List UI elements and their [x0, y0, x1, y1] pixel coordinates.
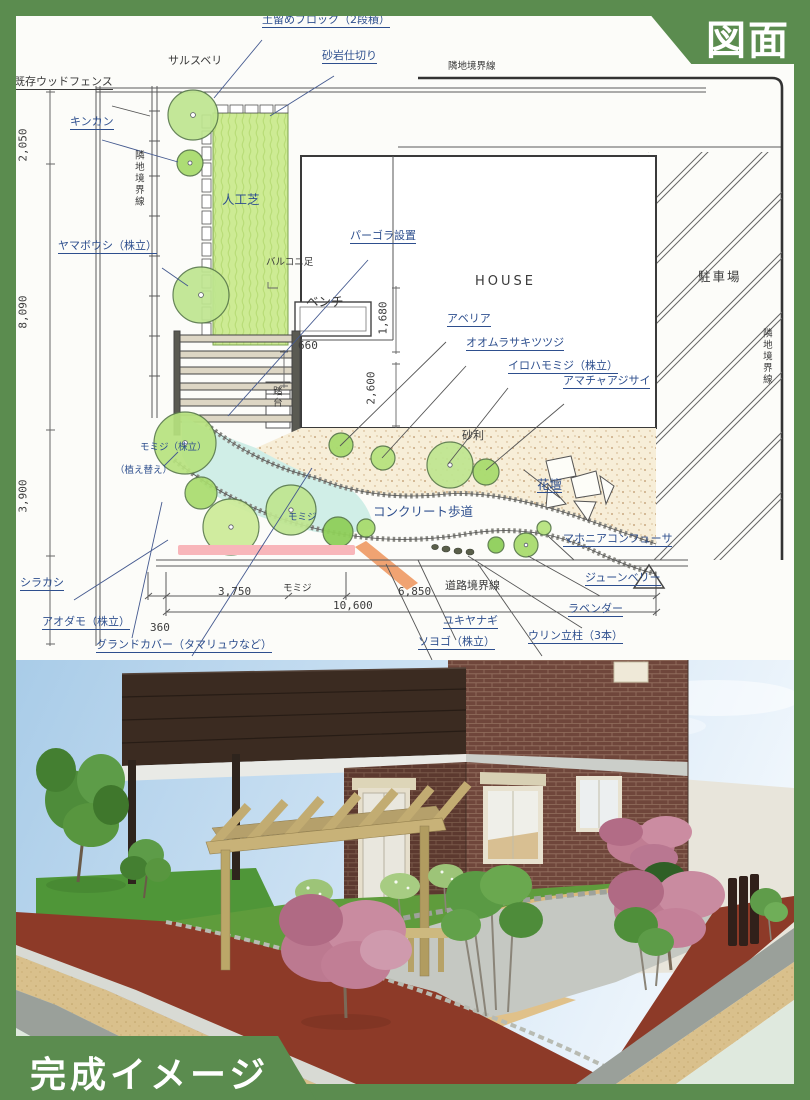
label-parking: 駐車場 — [698, 270, 742, 284]
label-yukiyanagi: ユキヤナギ — [443, 615, 498, 629]
dim-360: 360 — [150, 622, 170, 635]
label-momiji-kabudachi: モミジ（株立） — [140, 443, 207, 454]
label-irohamomiji: イロハモミジ（株立） — [508, 360, 618, 374]
label-aodamo: アオダモ（株立） — [42, 616, 130, 630]
plan-badge-label: 図面 — [706, 8, 790, 66]
dim-1680: 1,680 — [377, 302, 390, 335]
label-flowerbed: 花壇 — [537, 478, 562, 493]
label-concrete-walk: コンクリート歩道 — [373, 505, 473, 519]
label-yamaboushi: ヤマボウシ（株立） — [58, 240, 157, 254]
label-soyogo: ソヨゴ（株立） — [418, 636, 495, 650]
label-existing-wood-fence: 既存ウッドフェンス — [14, 76, 113, 90]
label-mahonia: マホニアコンフューサ — [563, 533, 672, 547]
label-retaining-block: 土留めブロック（2段積） — [262, 14, 390, 28]
label-artificial-turf: 人工芝 — [222, 193, 260, 207]
label-pergola-install: パーゴラ設置 — [350, 230, 416, 244]
dim-2050: 2,050 — [17, 129, 30, 162]
label-replant: （植え替え） — [115, 466, 172, 477]
dim-3750: 3,750 — [218, 586, 251, 599]
label-boundary-left: 隣地境界線 — [132, 150, 143, 208]
label-balcony-foot: バルコニ足 — [266, 258, 313, 269]
label-momiji-2: モミジ — [288, 513, 317, 524]
label-groundcover: グランドカバー（タマリュウなど） — [96, 639, 272, 653]
dim-6850: 6,850 — [398, 586, 431, 599]
label-house: HOUSE — [475, 275, 536, 290]
label-abelia: アベリア — [447, 313, 491, 327]
dim-3900: 3,900 — [17, 480, 30, 513]
plan-labels-layer: 土留めブロック（2段積） サルスベリ 砂岩仕切り 隣地境界線 既存ウッドフェンス… — [0, 0, 810, 1100]
label-sandstone-divider: 砂岩仕切り — [322, 50, 377, 64]
dim-2600: 2,600 — [365, 372, 378, 405]
label-urin-posts: ウリン立柱（3本） — [528, 630, 623, 644]
dim-8090: 8,090 — [17, 296, 30, 329]
label-kinkan: キンカン — [70, 116, 114, 130]
dim-10600: 10,600 — [333, 600, 373, 613]
label-step: 踏台 — [270, 386, 281, 409]
label-gravel: 砂利 — [462, 430, 484, 443]
label-oomurasaki-tsutsuji: オオムラサキツツジ — [466, 337, 564, 351]
label-bench: ベンチ — [306, 295, 344, 309]
label-sarusuberi: サルスベリ — [168, 55, 222, 68]
label-road-boundary: 道路境界線 — [445, 580, 500, 593]
garden-design-sheet: 土留めブロック（2段積） サルスベリ 砂岩仕切り 隣地境界線 既存ウッドフェンス… — [0, 0, 810, 1100]
label-amacha-ajisai: アマチャアジサイ — [563, 375, 650, 389]
dim-660: 660 — [298, 340, 318, 353]
label-shirakashi: シラカシ — [20, 577, 64, 591]
label-lavender: ラベンダー — [568, 603, 623, 617]
label-juneberry: ジューンベリー — [585, 572, 661, 586]
render-badge: 完成イメージ — [0, 1036, 316, 1100]
render-badge-label: 完成イメージ — [30, 1046, 269, 1098]
label-boundary-top: 隣地境界線 — [448, 62, 496, 73]
label-boundary-right: 隣地境界線 — [760, 328, 771, 386]
label-momiji-3: モミジ — [283, 584, 312, 595]
